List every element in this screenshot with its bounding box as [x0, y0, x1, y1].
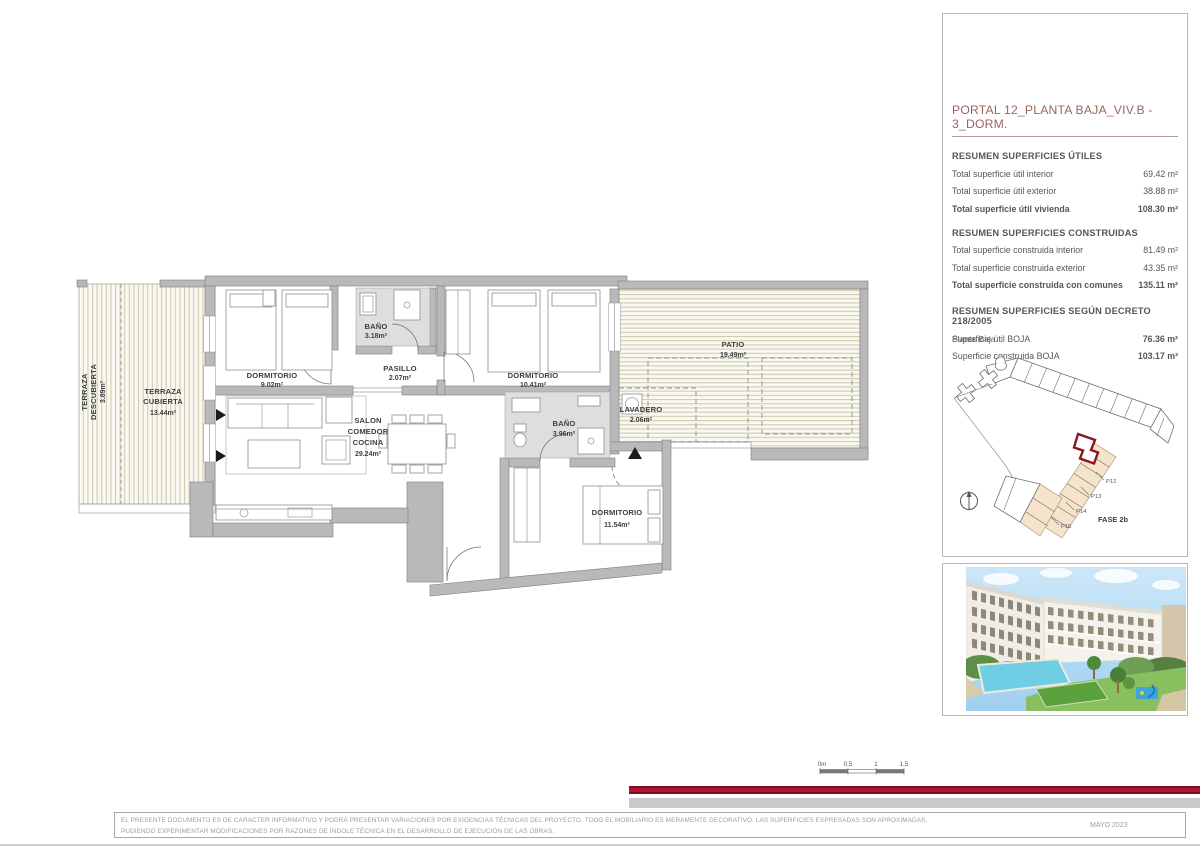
room-label-dorm2: DORMITORIO — [508, 371, 559, 380]
phase-label: FASE 2b — [1098, 515, 1128, 524]
section-heading-construidas: RESUMEN SUPERFICIES CONSTRUIDAS — [952, 228, 1178, 238]
disclaimer-line2: PUDIENDO EXPERIMENTAR MODIFICACIONES POR… — [121, 828, 1185, 836]
row-label: Total superficie construida interior — [952, 245, 1083, 255]
table-row: Total superficie construida interior 81.… — [952, 245, 1178, 255]
room-area-dorm3: 11.54m² — [604, 522, 630, 529]
table-row: Total superficie útil interior 69.42 m² — [952, 169, 1178, 179]
room-label-terraza-cubierta2: CUBIERTA — [143, 397, 183, 406]
scale-label-05: 0,5 — [844, 761, 853, 768]
row-value: 69.42 m² — [1143, 169, 1178, 179]
unit-label-p15: P15 — [1061, 524, 1071, 530]
room-label-terraza-descubierta: TERRAZA — [80, 373, 89, 411]
room-label-bano2: BAÑO — [553, 419, 576, 428]
row-label: Total superficie útil interior — [952, 169, 1054, 179]
sheet-date: MAYO 2023 — [1090, 822, 1128, 829]
disclaimer-line1: EL PRESENTE DOCUMENTO ES DE CARACTER INF… — [121, 817, 1185, 825]
room-area-bano2: 3.96m² — [553, 431, 576, 438]
row-value: 81.49 m² — [1143, 245, 1178, 255]
row-label: Total superficie útil exterior — [952, 186, 1056, 196]
room-label-lavadero: LAVADERO — [620, 405, 663, 414]
accent-gray-bar — [629, 798, 1200, 808]
info-panel: PORTAL 12_PLANTA BAJA_VIV.B - 3_DORM. RE… — [942, 13, 1188, 557]
table-row-total: Total superficie útil vivienda 108.30 m² — [952, 204, 1178, 214]
page-bottom-rule — [0, 844, 1200, 846]
row-label: Total superficie útil vivienda — [952, 204, 1070, 214]
patio — [619, 289, 860, 448]
table-row: Total superficie construida exterior 43.… — [952, 263, 1178, 273]
unit-label-p13: P13 — [1091, 494, 1101, 500]
room-label-salon2: COMEDOR — [348, 427, 389, 436]
room-area-terraza-cubierta: 13.44m² — [150, 410, 177, 417]
plan-sheet: TERRAZA DESCUBIERTA 3.89m² TERRAZA CUBIE… — [0, 0, 1200, 848]
room-area-lavadero: 2.06m² — [630, 417, 653, 424]
bedroom1-furniture — [226, 290, 332, 370]
bedroom3-furniture — [514, 468, 663, 544]
room-label-bano1: BAÑO — [365, 322, 388, 331]
row-value: 38.88 m² — [1143, 186, 1178, 196]
row-value: 43.35 m² — [1143, 263, 1178, 273]
row-value: 76.36 m² — [1143, 334, 1178, 344]
room-label-patio: PATIO — [722, 340, 745, 349]
room-label-dorm3: DORMITORIO — [592, 508, 643, 517]
north-compass-icon — [961, 491, 978, 510]
room-label-salon3: COCINA — [353, 438, 384, 447]
siteplan-buildings — [953, 357, 1174, 538]
scale-label-15: 1,5 — [900, 761, 909, 768]
disclaimer-box: EL PRESENTE DOCUMENTO ES DE CARACTER INF… — [114, 812, 1186, 838]
room-area-bano1: 3.18m² — [365, 333, 388, 340]
room-area-dorm2: 10.41m² — [520, 382, 547, 389]
section-heading-decreto: RESUMEN SUPERFICIES SEGÚN DECRETO 218/20… — [952, 306, 1178, 326]
unit-label-p14: P14 — [1076, 509, 1087, 515]
sheet-title: PORTAL 12_PLANTA BAJA_VIV.B - 3_DORM. — [952, 103, 1178, 137]
room-label-salon: SALON — [354, 416, 381, 425]
scale-bar: 0m 0,5 1 1,5 — [818, 761, 909, 775]
room-area-terraza-descubierta: 3.89m² — [100, 380, 107, 403]
room-label-pasillo: PASILLO — [383, 364, 416, 373]
project-photo-box — [942, 563, 1188, 716]
room-label-terraza-descubierta2: DESCUBIERTA — [89, 364, 98, 420]
scale-label-0: 0m — [818, 761, 827, 768]
section-heading-utiles: RESUMEN SUPERFICIES ÚTILES — [952, 151, 1178, 161]
unit-label-p12: P12 — [1106, 479, 1116, 485]
table-row-total: Total superficie construida con comunes … — [952, 280, 1178, 290]
room-area-patio: 19.49m² — [720, 352, 747, 359]
row-label: Total superficie construida exterior — [952, 263, 1085, 273]
accent-red-bar — [629, 786, 1200, 794]
room-area-pasillo: 2.07m² — [389, 375, 412, 382]
scale-label-1: 1 — [874, 761, 878, 768]
row-value: 108.30 m² — [1138, 204, 1178, 214]
room-area-dorm1: 9.02m² — [261, 382, 284, 389]
row-label: Total superficie construida con comunes — [952, 280, 1123, 290]
bedroom2-furniture — [446, 290, 600, 372]
room-label-dorm1: DORMITORIO — [247, 371, 298, 380]
row-value: 135.11 m² — [1138, 280, 1178, 290]
room-area-salon: 29.24m² — [355, 451, 382, 458]
project-photo — [966, 567, 1186, 711]
room-label-terraza-cubierta: TERRAZA — [144, 387, 182, 396]
siteplan-map: P12 P13 P14 P15 FASE 2b — [946, 346, 1186, 551]
table-row: Total superficie útil exterior 38.88 m² — [952, 186, 1178, 196]
siteplan-caption: Planta Baja — [952, 334, 995, 344]
